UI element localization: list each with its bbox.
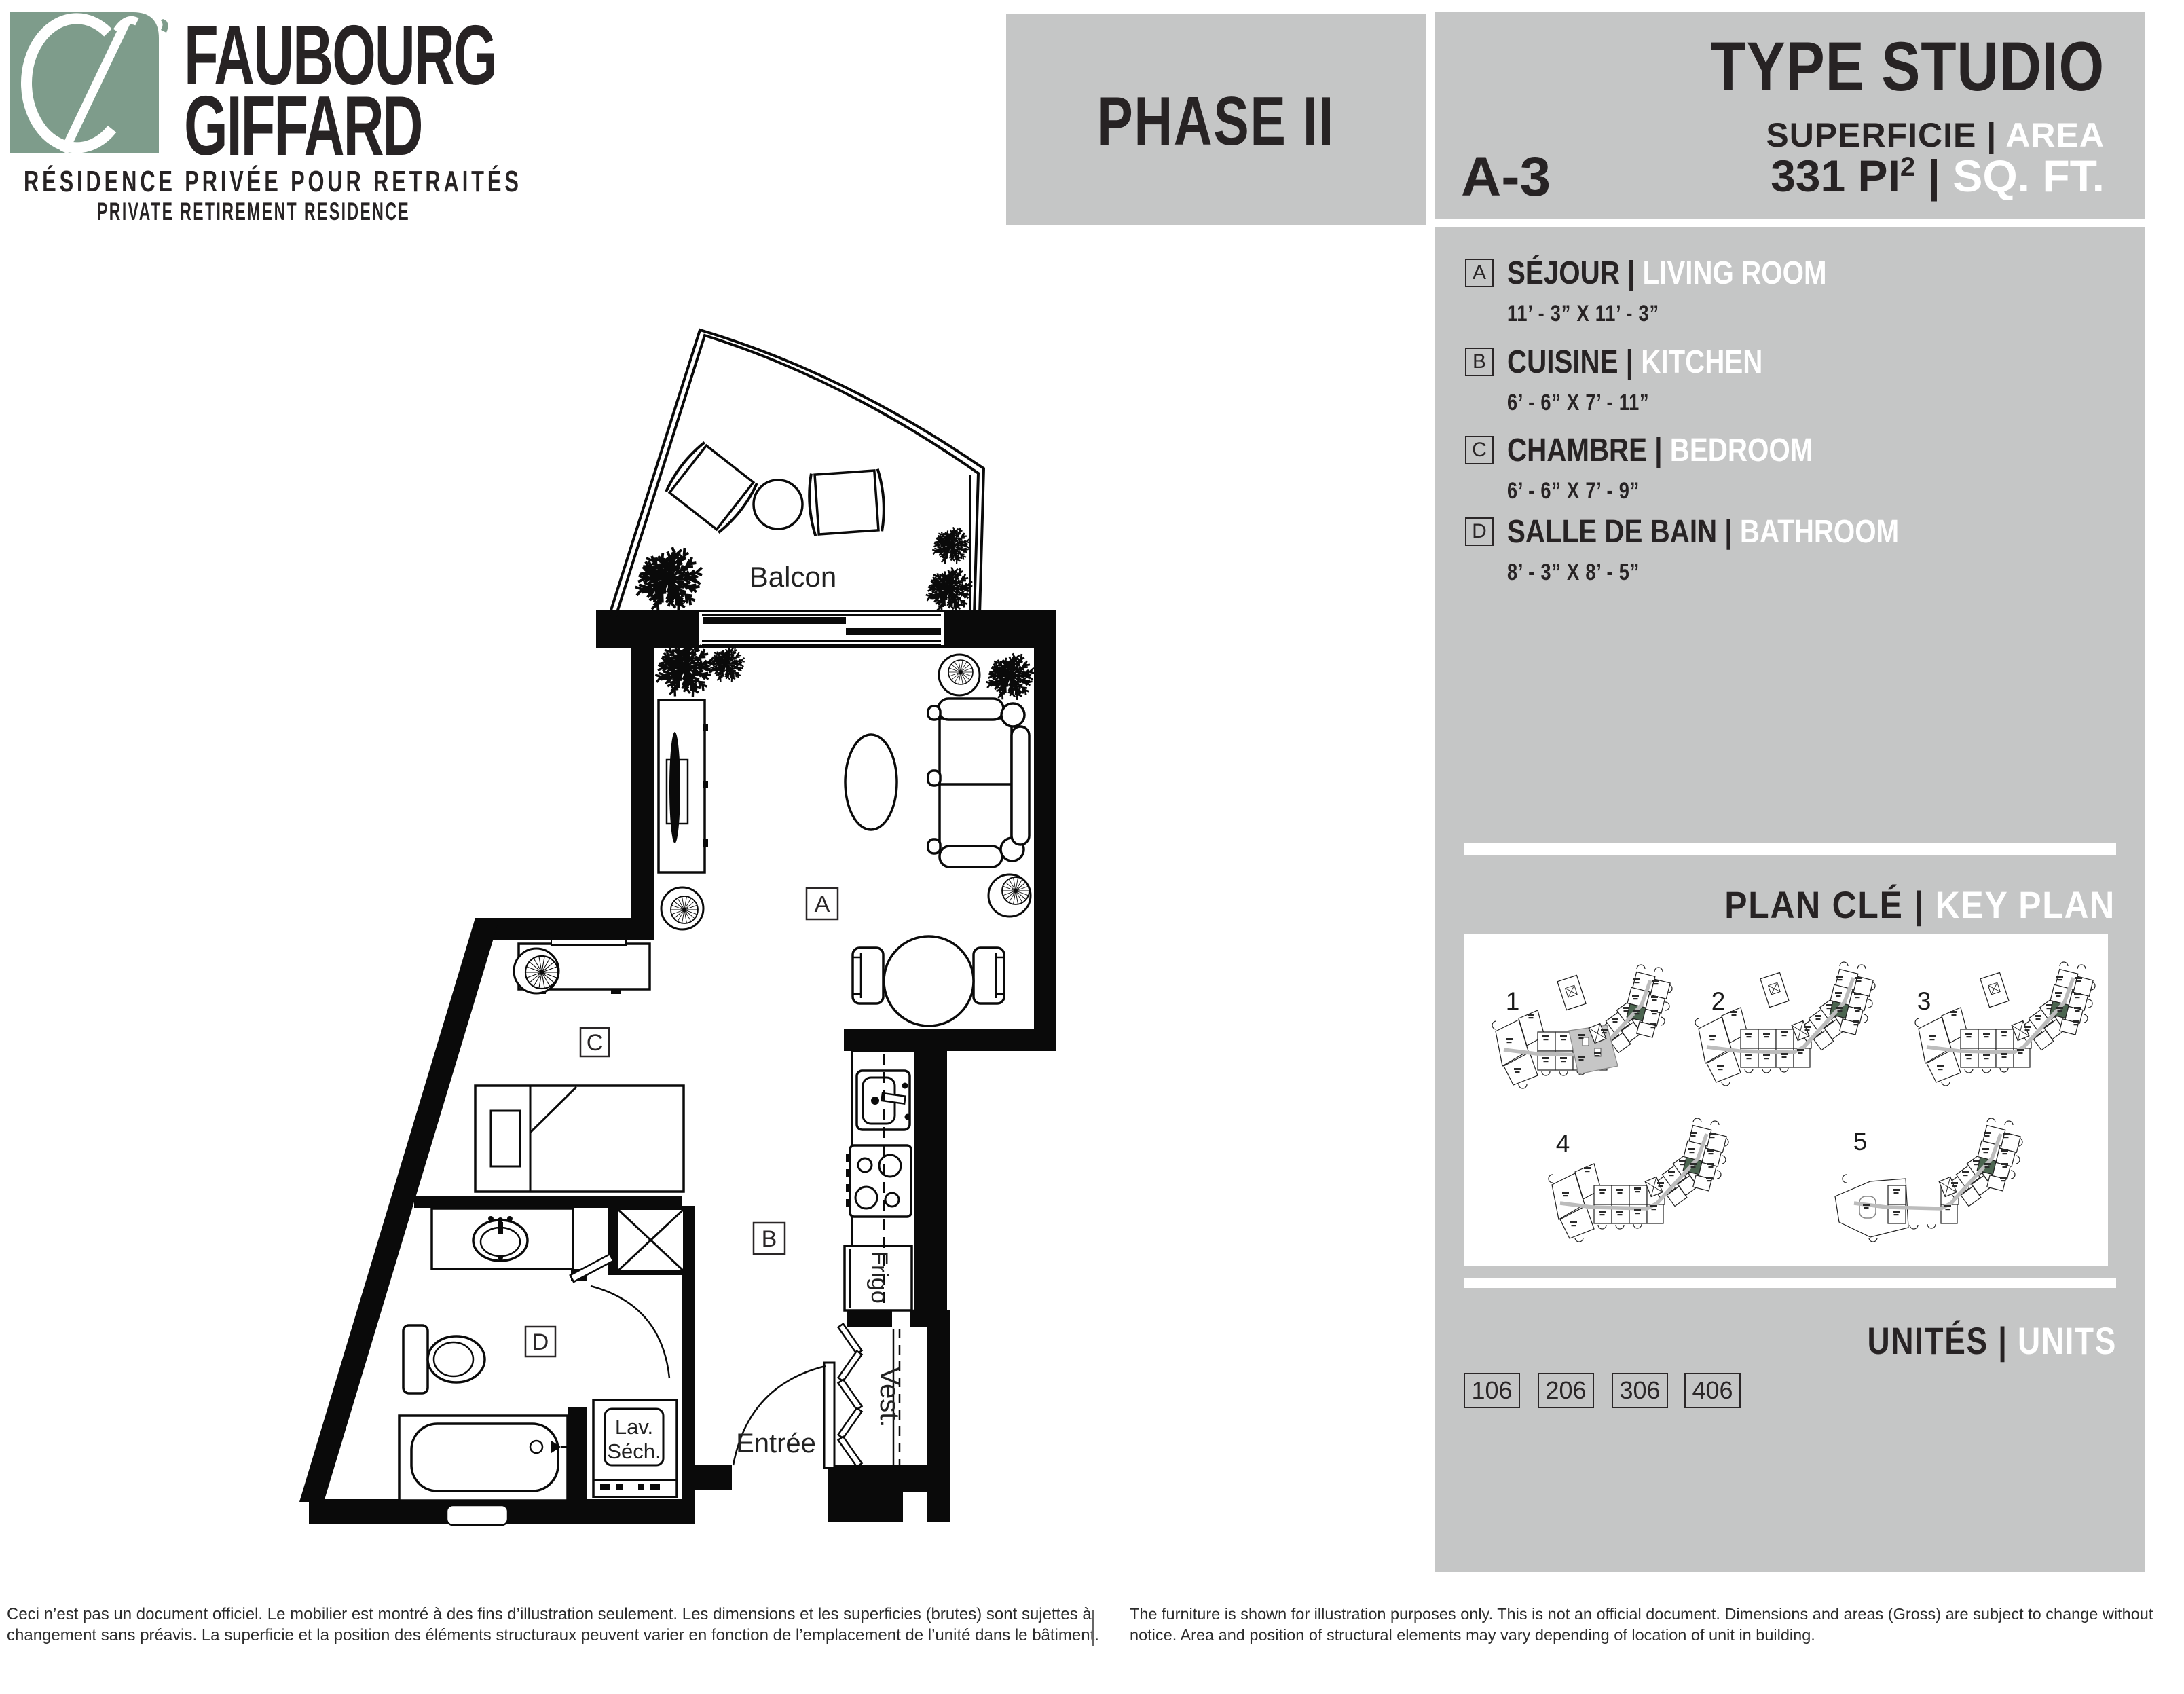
svg-text:5: 5 (1853, 1128, 1868, 1156)
svg-text:1: 1 (1506, 987, 1520, 1015)
svg-text:2: 2 (1711, 987, 1726, 1015)
svg-text:4: 4 (1556, 1130, 1570, 1158)
svg-text:3: 3 (1917, 987, 1931, 1015)
